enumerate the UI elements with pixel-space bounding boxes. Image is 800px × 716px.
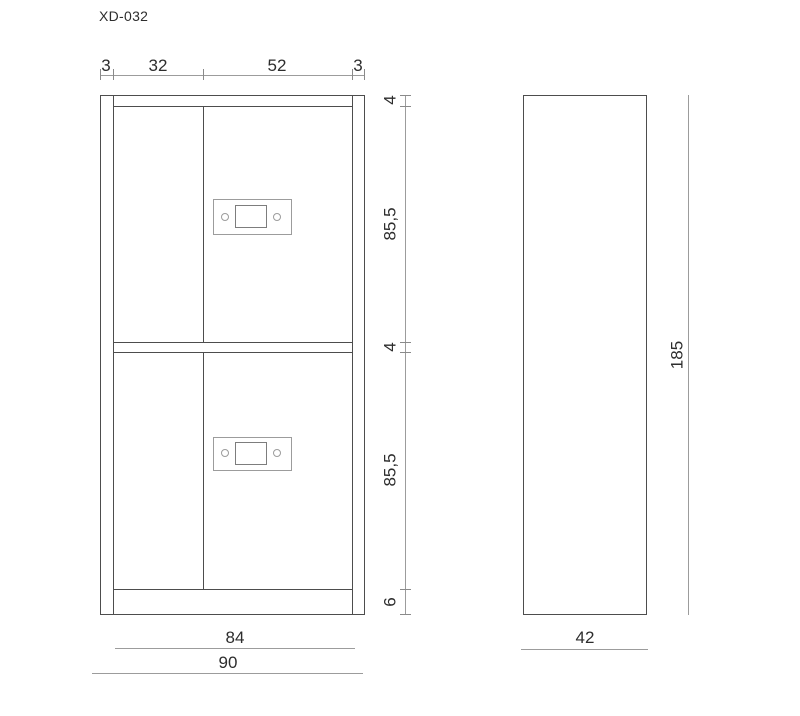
- dim-label-overall-height: 185: [669, 341, 686, 369]
- top-dim-tick: [203, 69, 204, 80]
- top-dim-line: [100, 75, 365, 76]
- side-outer-rect: [523, 95, 647, 615]
- front-middle-rail-top-line: [113, 342, 352, 343]
- dim-label-left-stile: 3: [101, 57, 110, 74]
- right-dim-line: [405, 95, 406, 615]
- depth-dim-line: [521, 649, 648, 650]
- right-dim-tick: [400, 95, 411, 96]
- front-left-stile-line: [113, 95, 114, 615]
- top-dim-tick: [113, 69, 114, 80]
- lock-plate-bottom-right-screw-icon: [273, 449, 281, 457]
- lock-plate-top-left-screw-icon: [221, 213, 229, 221]
- lock-plate-bottom-left-screw-icon: [221, 449, 229, 457]
- height-dim-line: [688, 95, 689, 615]
- dim-label-inner-width: 84: [226, 629, 245, 646]
- front-bottom-rail-line: [113, 589, 352, 590]
- dim-label-right-door-width: 52: [268, 57, 287, 74]
- dim-label-lower-door-height: 85,5: [382, 453, 399, 486]
- dim-label-right-stile: 3: [353, 57, 362, 74]
- front-upper-door-divider: [203, 106, 204, 342]
- right-dim-tick: [400, 352, 411, 353]
- right-dim-tick: [400, 614, 411, 615]
- top-dim-tick: [364, 69, 365, 80]
- lock-plate-top-right-screw-icon: [273, 213, 281, 221]
- inner-width-dim-line: [115, 648, 355, 649]
- drawing-title: XD-032: [99, 8, 148, 24]
- dim-label-depth: 42: [576, 629, 595, 646]
- right-dim-tick: [400, 589, 411, 590]
- front-top-rail-line: [113, 106, 352, 107]
- dim-label-overall-width: 90: [219, 654, 238, 671]
- right-dim-tick: [400, 106, 411, 107]
- front-lower-door-divider: [203, 352, 204, 589]
- dim-label-middle-rail: 4: [382, 342, 399, 351]
- front-middle-rail-bottom-line: [113, 352, 352, 353]
- dim-label-top-rail: 4: [382, 95, 399, 104]
- dim-label-upper-door-height: 85,5: [382, 207, 399, 240]
- front-outer-rect: [100, 95, 365, 615]
- dim-label-left-door-width: 32: [149, 57, 168, 74]
- drawing-canvas: XD-032: [0, 0, 800, 716]
- dim-label-bottom-rail: 6: [382, 597, 399, 606]
- overall-width-dim-line: [92, 673, 363, 674]
- front-right-stile-line: [352, 95, 353, 615]
- lock-plate-top-keyhole-rect: [235, 205, 267, 228]
- lock-plate-bottom-keyhole-rect: [235, 442, 267, 465]
- right-dim-tick: [400, 342, 411, 343]
